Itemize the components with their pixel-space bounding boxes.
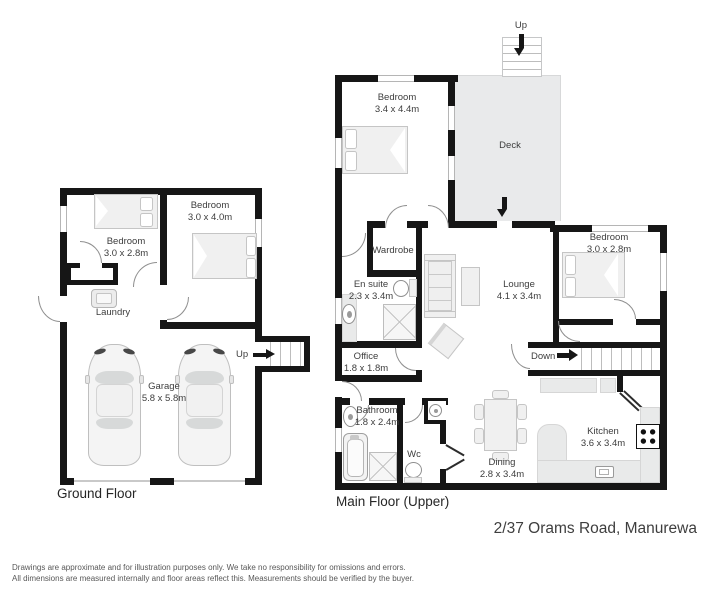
- sofa-armrest: [424, 311, 456, 318]
- car-roof: [96, 384, 133, 417]
- pillow: [140, 197, 153, 211]
- door-arc-icon: [385, 205, 407, 228]
- pillow: [345, 151, 357, 171]
- room-label-wardrobe: Wardrobe: [372, 245, 413, 257]
- wall: [255, 366, 310, 372]
- duvet-fold: [604, 254, 618, 296]
- window: [335, 428, 342, 452]
- bathtub-icon: [347, 439, 364, 477]
- door-arc-icon: [558, 321, 580, 342]
- sink-drain: [434, 409, 438, 413]
- stove-icon: [636, 424, 660, 449]
- room-label-bedroom: Bedroom 3.0 x 2.8m: [587, 232, 631, 255]
- room-label-bedroom: Bedroom 3.0 x 2.8m: [104, 236, 148, 259]
- wall: [335, 483, 667, 490]
- armchair-icon: [428, 323, 464, 359]
- door-opening: [497, 221, 512, 228]
- pillow: [345, 129, 357, 149]
- window: [660, 253, 667, 291]
- door-arc-icon: [342, 233, 366, 257]
- wall: [304, 336, 310, 372]
- disclaimer-line: Drawings are approximate and for illustr…: [12, 563, 406, 574]
- double-door-leaf: [446, 459, 465, 471]
- door-arc-icon: [80, 241, 102, 263]
- sofa-armrest: [424, 254, 456, 261]
- double-door-leaf: [446, 444, 465, 456]
- wall: [440, 469, 446, 483]
- toilet-icon: [393, 280, 409, 297]
- faucet: [350, 435, 359, 440]
- sink-basin: [599, 469, 609, 475]
- mirror: [229, 375, 234, 384]
- wall: [448, 75, 455, 228]
- stairs-icon: [572, 348, 660, 370]
- garage-door: [174, 480, 245, 482]
- door-opening: [613, 319, 636, 325]
- windshield: [185, 371, 224, 384]
- door-arc-icon: [342, 381, 362, 401]
- washer-icon: [96, 293, 112, 304]
- window: [335, 298, 342, 324]
- wall: [528, 370, 667, 376]
- room-label-laundry: Laundry: [96, 307, 130, 319]
- dining-table-icon: [484, 399, 517, 451]
- room-label-dining: Dining 2.8 x 3.4m: [480, 457, 524, 480]
- wall: [245, 478, 262, 485]
- room-label-kitchen: Kitchen 3.6 x 3.4m: [581, 426, 625, 449]
- door-opening: [80, 263, 102, 268]
- door-opening: [335, 381, 342, 397]
- pillow: [246, 236, 256, 256]
- wall: [60, 188, 67, 485]
- toilet-icon: [405, 462, 422, 478]
- headlight: [184, 347, 197, 355]
- room-label-bathroom: Bathroom 1.8 x 2.4m: [355, 405, 399, 428]
- pillow: [565, 277, 576, 297]
- pillow: [565, 255, 576, 275]
- room-label-office: Office 1.8 x 1.8m: [344, 351, 388, 374]
- chair-icon: [517, 404, 527, 420]
- stairs-down-label: Down: [531, 351, 555, 363]
- arrow-icon: [253, 353, 266, 357]
- headlight: [213, 347, 226, 355]
- coffee-table-icon: [461, 267, 480, 306]
- arrow-icon: [557, 353, 569, 358]
- shower-icon: [383, 304, 416, 340]
- window: [378, 75, 414, 82]
- arrow-icon: [497, 209, 507, 217]
- door-arc-icon: [395, 348, 416, 371]
- pillow: [246, 258, 256, 278]
- wall: [160, 188, 167, 285]
- door-opening: [416, 348, 422, 370]
- room-label-ensuite: En suite 2.3 x 3.4m: [349, 279, 393, 302]
- car-roof: [186, 384, 223, 417]
- door-arc-icon: [405, 405, 423, 423]
- door-opening: [405, 398, 422, 405]
- door-arc-icon: [511, 344, 530, 369]
- chair-icon: [517, 428, 527, 444]
- window: [448, 106, 455, 130]
- room-label-garage: Garage 5.8 x 5.8m: [142, 381, 186, 404]
- window: [335, 138, 342, 168]
- pillow: [140, 213, 153, 227]
- car-icon: [88, 344, 141, 466]
- door-arc-icon: [38, 296, 60, 322]
- rear-window: [96, 418, 133, 429]
- room-label-bedroom: Bedroom 3.0 x 4.0m: [188, 200, 232, 223]
- window: [448, 156, 455, 180]
- wall: [617, 376, 623, 392]
- door-arc-icon: [614, 299, 636, 319]
- cabinet: [540, 378, 597, 393]
- wall: [160, 322, 262, 329]
- window: [60, 206, 67, 232]
- floor-plan-canvas: Up Bedroom 3.0 x 2.8m Bedroom 3.0: [0, 0, 713, 600]
- duvet-fold: [390, 128, 405, 172]
- arrow-icon: [502, 197, 507, 209]
- chair-icon: [474, 428, 484, 444]
- shower-icon: [369, 452, 397, 481]
- arrow-icon: [519, 34, 524, 48]
- duvet-fold: [96, 196, 108, 226]
- window: [592, 225, 648, 232]
- room-label-lounge: Lounge 4.1 x 3.4m: [497, 279, 541, 302]
- room-label-wc: Wc: [407, 449, 421, 461]
- stairs-up-label: Up: [515, 20, 527, 32]
- door-arc-icon: [428, 205, 449, 228]
- toilet-tank: [404, 477, 422, 483]
- toilet-tank: [409, 279, 417, 297]
- headlight: [94, 347, 107, 355]
- arrow-icon: [514, 48, 524, 56]
- property-address: 2/37 Orams Road, Manurewa: [494, 520, 697, 538]
- cabinet: [600, 378, 616, 393]
- duvet-fold: [194, 235, 207, 277]
- chair-icon: [492, 390, 509, 399]
- room-label-bedroom: Bedroom 3.4 x 4.4m: [375, 92, 419, 115]
- sink-drain: [347, 311, 352, 318]
- door-arc-icon: [133, 262, 157, 287]
- stairs-up-label: Up: [236, 349, 248, 361]
- sofa-cushions: [428, 261, 452, 311]
- wall: [150, 478, 174, 485]
- windshield: [95, 371, 134, 384]
- floor-title-ground: Ground Floor: [57, 486, 137, 502]
- arrow-icon: [266, 349, 275, 359]
- garage-door: [74, 480, 150, 482]
- floor-title-main: Main Floor (Upper): [336, 494, 449, 510]
- wall: [60, 478, 74, 485]
- rear-window: [186, 418, 223, 429]
- wall: [335, 341, 422, 348]
- headlight: [123, 347, 136, 355]
- door-arc-icon: [167, 297, 189, 320]
- car-icon: [178, 344, 231, 466]
- arrow-icon: [569, 349, 578, 361]
- wall: [367, 270, 422, 277]
- mirror: [85, 375, 90, 384]
- disclaimer-line: All dimensions are measured internally a…: [12, 574, 414, 585]
- room-label-deck: Deck: [499, 140, 521, 152]
- chair-icon: [474, 404, 484, 420]
- sink-drain: [348, 414, 353, 420]
- door-opening: [60, 296, 67, 322]
